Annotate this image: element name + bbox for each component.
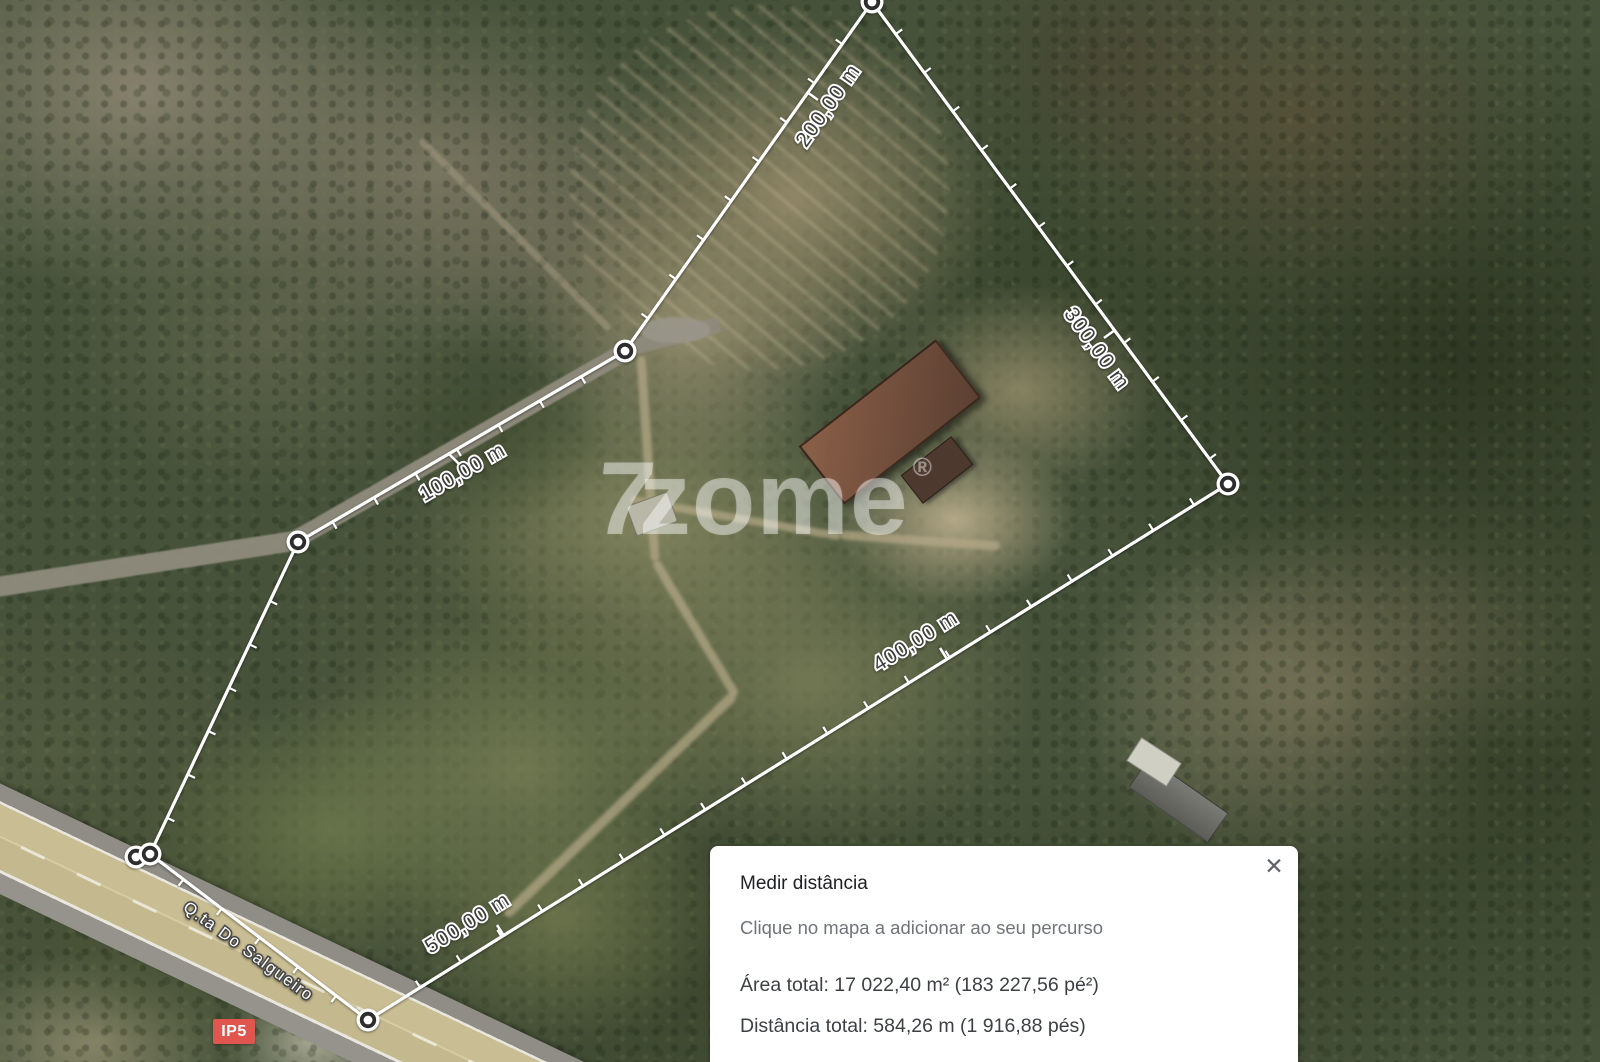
total-area-value: Área total: 17 022,40 m² (183 227,56 pé²… <box>740 972 1268 998</box>
distance-label: 100,00 m <box>415 438 509 506</box>
panel-title: Medir distância <box>740 872 1268 896</box>
road-name-label: Q.ta Do Salgueiro <box>180 898 317 1005</box>
measure-distance-panel: ✕ Medir distância Clique no mapa a adici… <box>710 846 1298 1062</box>
distance-label: 500,00 m <box>421 888 514 958</box>
road-shield-ip5: IP5 <box>213 1019 255 1044</box>
maps-viewport: 7zome® 100,00 m200,00 m300,00 m400,00 m5… <box>0 0 1600 1062</box>
distance-label: 400,00 m <box>869 606 962 676</box>
panel-subtitle: Clique no mapa a adicionar ao seu percur… <box>740 916 1268 940</box>
distance-label: 200,00 m <box>791 60 865 151</box>
distance-label: 300,00 m <box>1059 303 1134 394</box>
total-distance-value: Distância total: 584,26 m (1 916,88 pés) <box>740 1013 1268 1039</box>
close-icon[interactable]: ✕ <box>1260 852 1288 880</box>
